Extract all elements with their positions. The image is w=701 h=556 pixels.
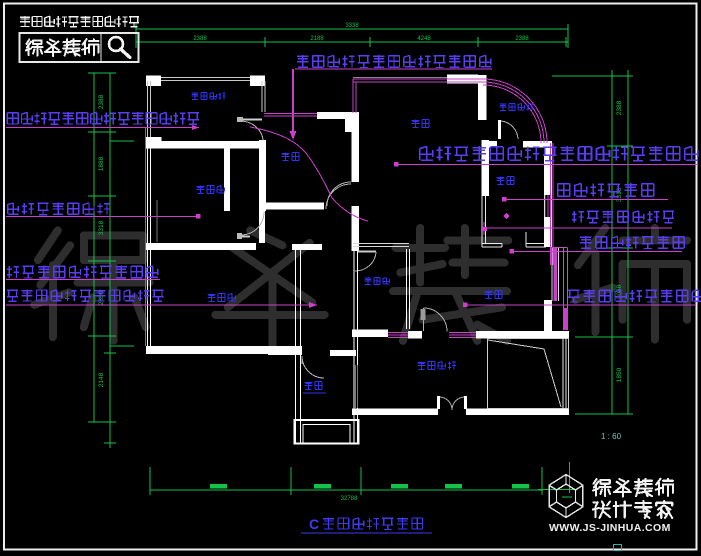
- svg-text:3338: 3338: [345, 23, 359, 29]
- svg-text:C: C: [309, 516, 319, 532]
- svg-text:2388: 2388: [193, 36, 207, 42]
- svg-text:2388: 2388: [616, 100, 623, 115]
- svg-text:1 : 60: 1 : 60: [601, 432, 622, 441]
- svg-text:3318: 3318: [616, 187, 623, 202]
- svg-text:2148: 2148: [98, 372, 105, 387]
- svg-text:3318: 3318: [98, 220, 105, 235]
- svg-text:2388: 2388: [515, 36, 529, 42]
- svg-text:1850: 1850: [616, 367, 623, 382]
- svg-text:2388: 2388: [98, 94, 105, 109]
- svg-text:4248: 4248: [417, 36, 431, 42]
- svg-text:32788: 32788: [341, 496, 358, 502]
- svg-text:1888: 1888: [98, 156, 105, 171]
- svg-text:2188: 2188: [310, 36, 324, 42]
- svg-text:WWW.JS-JINHUA.COM: WWW.JS-JINHUA.COM: [549, 522, 671, 534]
